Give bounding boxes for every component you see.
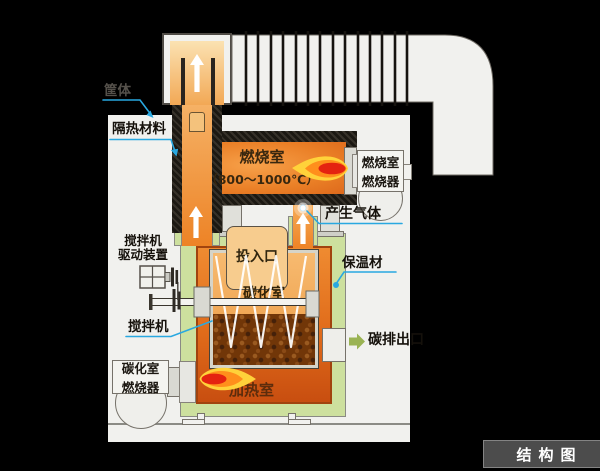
feed-inlet-label-wrap: 投入口 bbox=[226, 246, 288, 265]
mixer-drive-label-2: 驱动装置 bbox=[112, 248, 174, 262]
combustion-chamber-label: 燃烧室 bbox=[196, 146, 328, 167]
combustion-burner-label-2: 燃烧器 bbox=[362, 171, 400, 190]
chimney-duct-wall-left bbox=[181, 58, 185, 105]
carbonization-chamber-label: 碳化室 bbox=[243, 286, 285, 302]
furnace-leg-left-foot bbox=[182, 419, 205, 425]
chimney-duct-wall-right bbox=[211, 58, 215, 105]
casing-label: 筐体 bbox=[104, 84, 131, 100]
carbon-bed bbox=[213, 314, 315, 365]
heat-insulation-label: 隔热材料 bbox=[112, 122, 166, 138]
carbonization-burner-label-1: 碳化室 bbox=[122, 358, 160, 377]
combustion-burner-label-1: 燃烧室 bbox=[362, 152, 400, 171]
feed-inlet-label: 投入口 bbox=[236, 249, 278, 265]
carbonization-burner-label-2: 燃烧器 bbox=[122, 377, 160, 396]
carbonization-furnace-diagram: 燃烧室 燃烧器 碳化室 燃烧器 bbox=[0, 0, 600, 471]
gas-riser-cladding-right bbox=[313, 216, 318, 246]
exhaust-channel-wall-left bbox=[172, 103, 182, 233]
combustion-burner-label-box: 燃烧室 燃烧器 bbox=[357, 150, 404, 192]
combustion-burner-tab bbox=[403, 164, 412, 180]
heat-exchanger-fins bbox=[246, 31, 407, 106]
carbonization-burner-connector-inner bbox=[179, 361, 196, 403]
furnace-leg-right-foot bbox=[288, 419, 311, 425]
generated-gas-label: 产生气体 bbox=[325, 206, 381, 222]
combustion-temp-label: （800～1000℃） bbox=[196, 169, 328, 188]
mixer-drive-label-1: 搅拌机 bbox=[112, 234, 174, 248]
carbon-outlet-port bbox=[322, 328, 346, 362]
title-badge-text: 结构图 bbox=[516, 444, 582, 465]
support-column-right-base bbox=[316, 231, 344, 237]
title-badge: 结构图 bbox=[483, 440, 600, 468]
mixer-label: 搅拌机 bbox=[128, 320, 169, 336]
heating-chamber-label: 加热室 bbox=[229, 382, 274, 399]
carbonization-burner-label-box: 碳化室 燃烧器 bbox=[112, 360, 169, 394]
carbon-outlet-label: 碳排出口 bbox=[368, 332, 424, 348]
mixer-drive-label: 搅拌机 驱动装置 bbox=[112, 234, 174, 263]
chimney-interior bbox=[170, 41, 224, 105]
channel-damper bbox=[189, 112, 205, 132]
casing-leader bbox=[103, 100, 152, 116]
gas-riser-duct bbox=[293, 205, 313, 248]
insulation-mat-label: 保温材 bbox=[342, 256, 383, 272]
combustion-chamber-title-block: 燃烧室 （800～1000℃） bbox=[196, 146, 328, 188]
carbonization-chamber-label-wrap: 碳化室 bbox=[210, 283, 318, 302]
